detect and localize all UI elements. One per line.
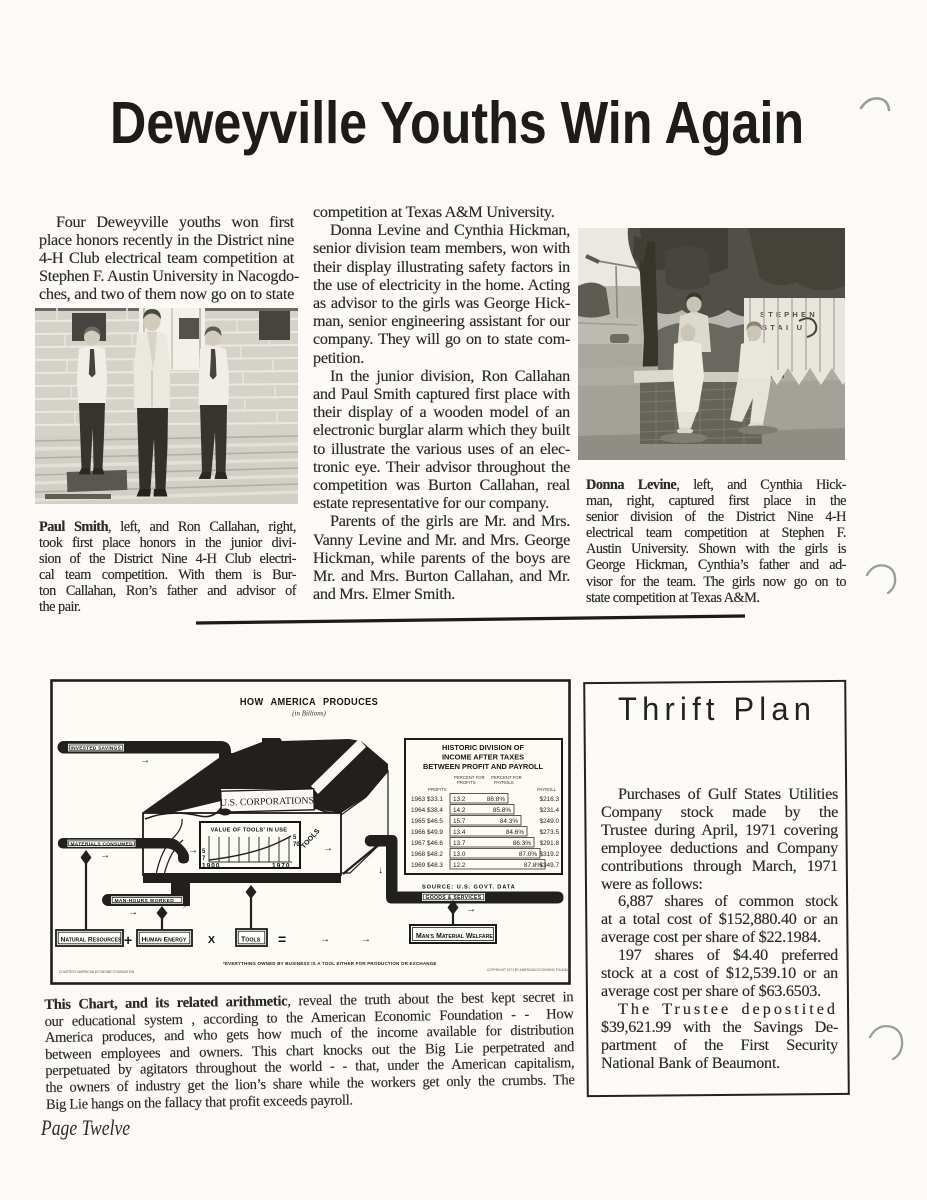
svg-text:$249.0: $249.0 (539, 818, 559, 825)
svg-text:1970: 1970 (272, 863, 290, 870)
svg-text:STAI U: STAI U (762, 323, 805, 332)
svg-text:→: → (466, 904, 476, 915)
svg-text:1965 $46.5: 1965 $46.5 (411, 818, 443, 825)
svg-text:PAYROLS: PAYROLS (494, 780, 514, 785)
svg-text:$273.5: $273.5 (539, 829, 559, 836)
svg-text:(in Billions): (in Billions) (292, 710, 326, 718)
svg-text:SOURCE: U.S. GOVT. DATA: SOURCE: U.S. GOVT. DATA (422, 885, 516, 891)
svg-text:→: → (320, 934, 330, 945)
svg-text:1967 $46.6: 1967 $46.6 (411, 840, 443, 847)
svg-text:1900: 1900 (202, 863, 220, 870)
svg-text:HUMAN ENERGY: HUMAN ENERGY (142, 937, 187, 944)
svg-text:MATERIALS CONSUMED: MATERIALS CONSUMED (71, 841, 134, 847)
svg-text:86.8%: 86.8% (487, 796, 505, 803)
svg-text:MAN-HOURS WORKED: MAN-HOURS WORKED (115, 898, 175, 904)
svg-text:84.6%: 84.6% (506, 829, 524, 836)
svg-text:86.3%: 86.3% (513, 840, 531, 847)
svg-text:HOW AMERICA PRODUCES: HOW AMERICA PRODUCES (240, 697, 378, 709)
svg-text:COPYRIGHT 1971 BY AMERICAN ECO: COPYRIGHT 1971 BY AMERICAN ECONOMIC FOUN… (487, 968, 571, 972)
svg-text:X: X (208, 934, 215, 946)
svg-text:13.2: 13.2 (453, 796, 466, 803)
svg-text:87.0%: 87.0% (519, 851, 537, 858)
svg-text:$216.3: $216.3 (539, 796, 559, 803)
svg-text:*EVERYTHING OWNED BY BUSINESS: *EVERYTHING OWNED BY BUSINESS IS A TOOL … (223, 961, 437, 966)
svg-text:$291.8: $291.8 (539, 840, 559, 847)
svg-text:↓: ↓ (378, 865, 383, 876)
svg-text:PROFITS: PROFITS (457, 780, 476, 785)
svg-text:1968 $48.2: 1968 $48.2 (411, 851, 443, 858)
svg-text:1966 $49.9: 1966 $49.9 (411, 829, 443, 836)
svg-text:VALUE OF TOOLS’ IN USE: VALUE OF TOOLS’ IN USE (211, 828, 288, 834)
svg-text:15.7: 15.7 (453, 818, 466, 825)
svg-text:$231.4: $231.4 (539, 807, 559, 814)
svg-text:BETWEEN PROFIT AND PAYROLL: BETWEEN PROFIT AND PAYROLL (423, 762, 544, 771)
svg-text:1963 $33.1: 1963 $33.1 (411, 796, 443, 803)
svg-text:TOOLS: TOOLS (241, 937, 261, 944)
svg-text:84.3%: 84.3% (500, 818, 518, 825)
svg-text:$349.7: $349.7 (539, 862, 559, 869)
svg-text:13.7: 13.7 (453, 840, 466, 847)
svg-text:GOODS & SERVICES: GOODS & SERVICES (426, 895, 482, 901)
svg-text:→: → (361, 934, 371, 945)
svg-text:85.8%: 85.8% (493, 807, 511, 814)
svg-text:=: = (278, 931, 286, 947)
svg-text:1969 $48.3: 1969 $48.3 (411, 862, 443, 869)
svg-text:12.2: 12.2 (453, 862, 466, 869)
svg-text:→: → (188, 845, 198, 856)
svg-text:14.2: 14.2 (453, 807, 466, 814)
svg-text:13.4: 13.4 (453, 829, 466, 836)
svg-text:PAYROLL: PAYROLL (537, 787, 557, 792)
svg-text:→: → (100, 850, 110, 861)
svg-text:→: → (140, 755, 150, 766)
svg-text:MAN’S MATERIAL WELFARE: MAN’S MATERIAL WELFARE (416, 933, 493, 940)
svg-text:COURTESY AMERICAN ECONOMIC FOU: COURTESY AMERICAN ECONOMIC FOUNDATION (59, 970, 135, 974)
svg-text:HISTORIC DIVISION OF: HISTORIC DIVISION OF (442, 743, 524, 752)
svg-text:+: + (124, 932, 132, 948)
svg-text:INCOME AFTER TAXES: INCOME AFTER TAXES (442, 753, 524, 762)
svg-text:$319.2: $319.2 (539, 851, 559, 858)
svg-text:PROFITS: PROFITS (428, 787, 447, 792)
svg-text:NATURAL RESOURCES: NATURAL RESOURCES (61, 937, 122, 944)
svg-text:→: → (323, 843, 333, 854)
svg-text:INVESTED SAVINGS: INVESTED SAVINGS (71, 746, 122, 752)
svg-text:→: → (128, 907, 138, 918)
svg-text:70: 70 (293, 842, 300, 848)
svg-text:1964 $38.4: 1964 $38.4 (411, 807, 443, 814)
svg-text:13.0: 13.0 (453, 851, 466, 858)
